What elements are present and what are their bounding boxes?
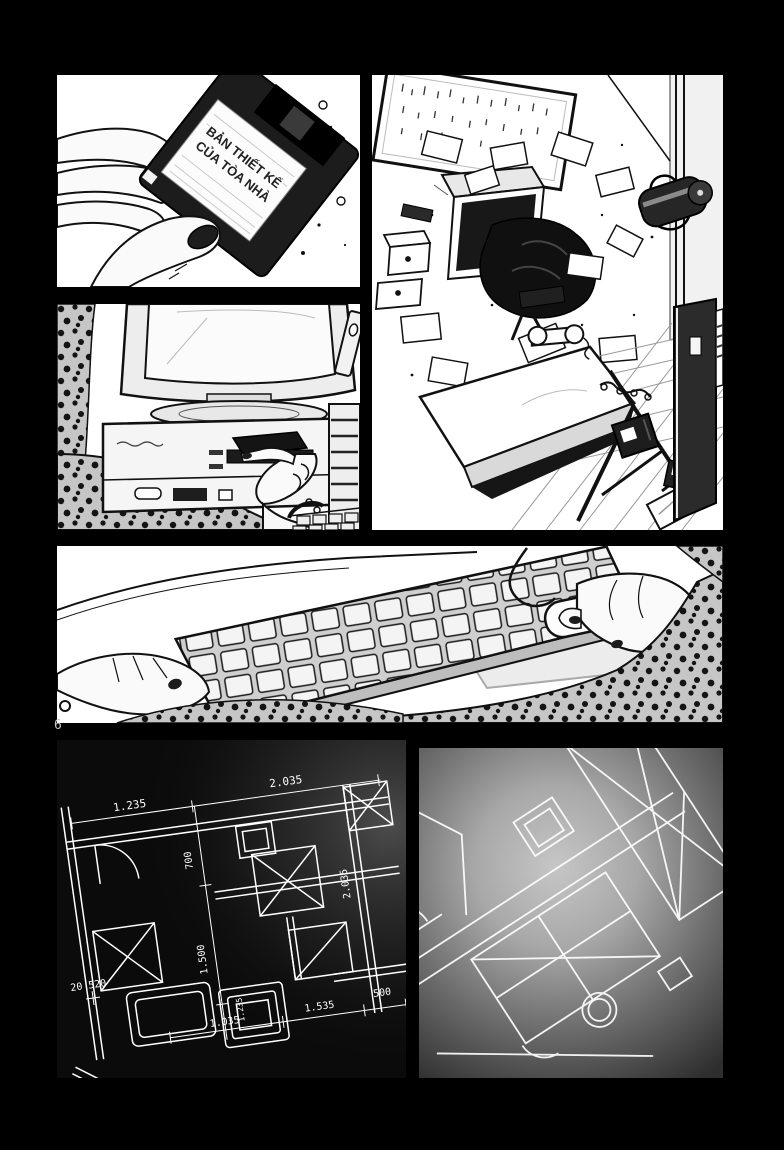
panel-computer [57, 304, 360, 530]
mouse-hand-nail [569, 616, 581, 624]
leopard-shoulder-top [677, 546, 723, 582]
crt-monitor [121, 304, 355, 427]
blueprint-art: 1.235 2.035 700 1.500 2.035 20 520 1.235… [57, 740, 406, 1078]
manga-page: BẢN THIẾT KẾ CỦA TÒA NHÀ [0, 0, 784, 1150]
panel-floppy-disk: BẢN THIẾT KẾ CỦA TÒA NHÀ [57, 75, 360, 287]
dark-partition [674, 299, 716, 521]
panel-screen-blueprint [419, 748, 723, 1078]
light-switch [690, 337, 701, 355]
screen-floor-plan [419, 748, 723, 1078]
wall-corner-edge [608, 75, 670, 161]
desktop-case [103, 418, 359, 512]
drawer-boxes [376, 231, 430, 309]
panel-ransacked-room [372, 75, 723, 530]
typing-hand [57, 654, 209, 715]
page-number: 6 [54, 718, 62, 733]
screen-blueprint-art [419, 748, 723, 1078]
panel-keyboard-mouse [57, 546, 723, 723]
room-panel-art [372, 75, 723, 530]
desk-behind-partition [716, 309, 723, 387]
keyboard-panel-art [57, 546, 723, 723]
computer-panel-art [57, 304, 360, 530]
floppy-panel-art: BẢN THIẾT KẾ CỦA TÒA NHÀ [57, 75, 360, 287]
hand-thumb [91, 216, 222, 287]
panel-blueprint: 1.235 2.035 700 1.500 2.035 20 520 1.235… [57, 740, 406, 1078]
